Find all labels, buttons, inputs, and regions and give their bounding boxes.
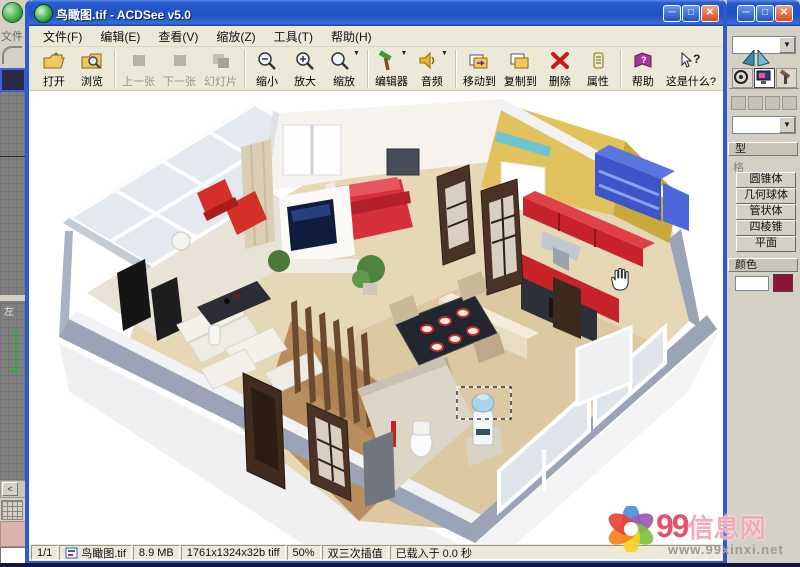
background-trackbar <box>0 521 26 547</box>
tif-file-icon <box>65 547 78 559</box>
viewport-axis-icon <box>10 370 18 372</box>
editor-icon <box>375 50 399 72</box>
next-image-icon <box>168 50 192 72</box>
audio-button[interactable]: ▼ 音频 <box>412 48 452 90</box>
chevron-down-icon: ▼ <box>353 50 360 57</box>
watermark-name: 信息网 <box>688 513 766 543</box>
move-to-icon <box>467 50 491 72</box>
background-left-strip: 文件 左 < <box>0 0 25 567</box>
browse-label: 浏览 <box>81 73 103 89</box>
toolbar-separator <box>114 50 115 88</box>
name-color-rollout[interactable]: 颜色 <box>728 258 798 272</box>
waves-icon[interactable] <box>765 96 780 110</box>
delete-icon <box>548 50 572 72</box>
audio-icon <box>416 50 440 72</box>
background-titlebar: ─ □ ✕ <box>727 0 800 26</box>
editor-label: 编辑器 <box>375 73 408 89</box>
status-filesize: 8.9 MB <box>133 545 180 560</box>
status-zoom: 50% <box>287 545 321 560</box>
window-title: 鸟瞰图.tif - ACDSee v5.0 <box>56 6 191 23</box>
object-name-field[interactable] <box>735 276 769 291</box>
primitive-button-tube[interactable]: 管状体 <box>736 204 796 220</box>
slideshow-label: 幻灯片 <box>204 73 237 89</box>
chevron-down-icon[interactable]: ▼ <box>779 117 795 133</box>
zoom-in-label: 放大 <box>294 73 316 89</box>
toolbar-separator <box>244 50 245 88</box>
help-label: 帮助 <box>632 73 654 89</box>
chevron-down-icon[interactable]: ▼ <box>779 37 795 53</box>
acdsee-window: 鸟瞰图.tif - ACDSee v5.0 ─ □ ✕ 文件(F) 编辑(E) … <box>25 0 727 563</box>
toolbar: 打开 浏览 上一张 下一张 幻灯片 缩小 <box>29 47 723 91</box>
toolbar-separator <box>620 50 621 88</box>
viewport-splitter[interactable] <box>0 295 25 301</box>
zoom-in-icon <box>293 50 317 72</box>
chevron-down-icon: ▼ <box>441 50 448 57</box>
editor-button[interactable]: ▼ 编辑器 <box>371 48 412 90</box>
status-page: 1/1 <box>31 545 58 560</box>
maximize-button[interactable]: □ <box>682 5 700 22</box>
shapes-icon[interactable] <box>748 96 763 110</box>
slideshow-button[interactable]: 幻灯片 <box>200 48 241 90</box>
svg-text:?: ? <box>693 52 700 66</box>
status-format: 1761x1324x32b tiff <box>181 545 286 560</box>
image-canvas[interactable] <box>29 91 723 544</box>
bg-minimize-button[interactable]: ─ <box>737 5 755 22</box>
tab-display-icon[interactable] <box>732 68 753 88</box>
undo-arc-icon <box>2 46 22 64</box>
slideshow-icon <box>209 50 233 72</box>
bg-close-button[interactable]: ✕ <box>775 5 793 22</box>
panel-tab-row <box>729 66 799 89</box>
whats-this-button[interactable]: ? 这是什么? <box>662 48 720 90</box>
menu-zoom[interactable]: 缩放(Z) <box>208 26 263 47</box>
primitive-button-pyramid[interactable]: 四棱锥 <box>736 220 796 236</box>
chevron-down-icon: ▼ <box>400 50 407 57</box>
zoom-out-icon <box>255 50 279 72</box>
previous-button[interactable]: 上一张 <box>118 48 159 90</box>
copy-to-label: 复制到 <box>504 73 537 89</box>
viewport-divider <box>0 156 25 157</box>
primitive-button-geosphere[interactable]: 几何球体 <box>736 188 796 204</box>
whats-this-icon: ? <box>676 50 706 72</box>
previous-image-icon <box>127 50 151 72</box>
background-keyframe-button[interactable] <box>1 500 23 520</box>
bg-maximize-button[interactable]: □ <box>756 5 774 22</box>
bottom-edge <box>0 563 800 567</box>
background-viewport[interactable] <box>0 92 25 480</box>
floorplan-image <box>29 91 723 544</box>
background-file-menu[interactable]: 文件 <box>1 28 25 44</box>
zoom-out-button[interactable]: 缩小 <box>248 48 286 90</box>
audio-label: 音频 <box>421 73 443 89</box>
properties-label: 属性 <box>587 73 609 89</box>
tab-create-icon[interactable] <box>776 68 797 88</box>
panel-icon-row <box>727 96 800 110</box>
zoom-in-button[interactable]: 放大 <box>286 48 324 90</box>
primitive-category-dropdown[interactable]: ▼ <box>732 116 796 134</box>
help-book-icon: ? <box>631 50 655 72</box>
scroll-left-arrow-icon[interactable]: < <box>2 482 18 496</box>
close-button[interactable]: ✕ <box>701 5 719 22</box>
status-filename: 鸟瞰图.tif <box>59 545 132 560</box>
status-interpolation: 双三次插值 <box>322 545 389 560</box>
zoom-out-label: 缩小 <box>256 73 278 89</box>
open-label: 打开 <box>43 73 65 89</box>
background-command-panel: ─ □ ✕ ▼ ▼ 型 格 圆锥体 几何球体 <box>727 0 800 567</box>
help-button[interactable]: ? 帮助 <box>624 48 662 90</box>
open-button[interactable]: 打开 <box>35 48 73 90</box>
acdsee-app-icon <box>34 4 53 23</box>
zoom-icon <box>328 50 352 72</box>
background-toolbar-button[interactable] <box>0 68 26 92</box>
svg-text:?: ? <box>641 55 647 65</box>
geometry-icon[interactable] <box>731 96 746 110</box>
zoom-button[interactable]: ▼ 缩放 <box>324 48 364 90</box>
delete-button[interactable]: 删除 <box>541 48 579 90</box>
menu-view[interactable]: 查看(V) <box>150 26 206 47</box>
minimize-button[interactable]: ─ <box>663 5 681 22</box>
background-app-icon <box>2 2 23 23</box>
toolbar-separator <box>455 50 456 88</box>
menubar: 文件(F) 编辑(E) 查看(V) 缩放(Z) 工具(T) 帮助(H) <box>29 26 723 47</box>
systems-icon[interactable] <box>782 96 797 110</box>
menu-edit[interactable]: 编辑(E) <box>92 26 148 47</box>
acdsee-titlebar[interactable]: 鸟瞰图.tif - ACDSee v5.0 ─ □ ✕ <box>29 0 723 26</box>
browse-folder-icon <box>80 50 104 72</box>
next-label: 下一张 <box>163 73 196 89</box>
move-to-button[interactable]: 移动到 <box>459 48 500 90</box>
move-to-label: 移动到 <box>463 73 496 89</box>
mirror-icon[interactable] <box>741 50 771 66</box>
copy-to-icon <box>508 50 532 72</box>
menu-tools[interactable]: 工具(T) <box>266 26 321 47</box>
watermark-number: 99 <box>656 508 688 544</box>
viewport-axis-icon <box>15 330 17 372</box>
next-button[interactable]: 下一张 <box>159 48 200 90</box>
open-folder-icon <box>42 50 66 72</box>
toolbar-separator <box>367 50 368 88</box>
object-color-swatch[interactable] <box>773 274 793 292</box>
whats-this-label: 这是什么? <box>666 73 716 89</box>
properties-button[interactable]: 属性 <box>579 48 617 90</box>
menu-file[interactable]: 文件(F) <box>35 26 90 47</box>
copy-to-button[interactable]: 复制到 <box>500 48 541 90</box>
background-status-field <box>0 547 26 564</box>
watermark-url: www.99xinxi.net <box>668 542 784 557</box>
screen: 文件 左 < ─ □ ✕ ▼ <box>0 0 800 567</box>
tab-utilities-icon[interactable] <box>754 68 775 88</box>
object-type-rollout[interactable]: 型 <box>728 142 798 156</box>
menu-help[interactable]: 帮助(H) <box>323 26 380 47</box>
delete-label: 删除 <box>549 73 571 89</box>
watermark-logo-icon <box>608 506 654 552</box>
viewport-label: 左 <box>4 303 14 318</box>
browse-button[interactable]: 浏览 <box>73 48 111 90</box>
primitive-button-plane[interactable]: 平面 <box>736 236 796 252</box>
previous-label: 上一张 <box>122 73 155 89</box>
primitive-button-cone[interactable]: 圆锥体 <box>736 172 796 188</box>
background-hscrollbar[interactable]: < <box>0 480 27 498</box>
properties-icon <box>586 50 610 72</box>
watermark: 99信息网 www.99xinxi.net <box>608 506 798 562</box>
zoom-label: 缩放 <box>333 73 355 89</box>
